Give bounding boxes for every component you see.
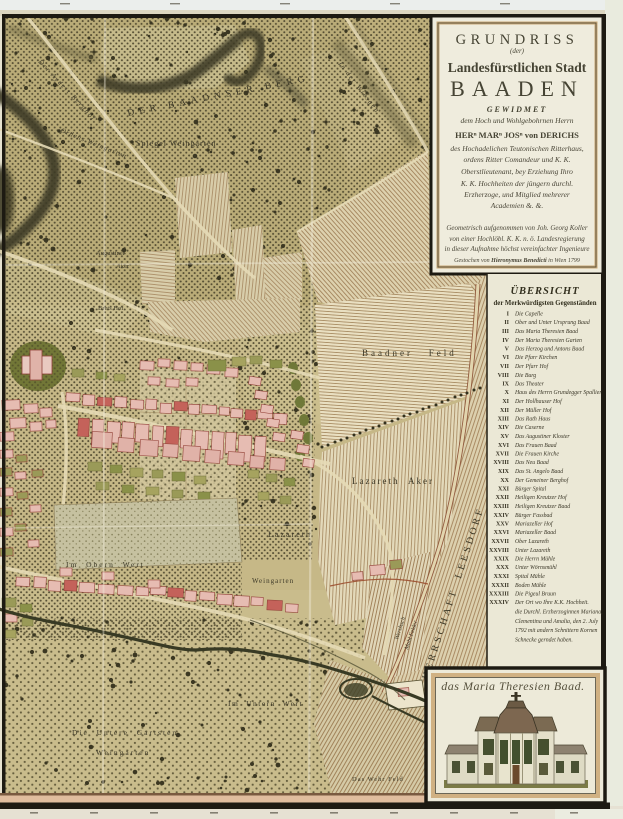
svg-text:IX: IX: [502, 382, 509, 388]
svg-text:Die Capelle: Die Capelle: [514, 312, 543, 318]
svg-text:die Durchl. Erzherzoginnen Mar: die Durchl. Erzherzoginnen Mariana,: [515, 610, 603, 616]
svg-text:Der Gemeiner Berghof: Der Gemeiner Berghof: [514, 477, 570, 484]
svg-text:XXV: XXV: [496, 522, 510, 528]
svg-text:der Merkwürdigsten Gegenstände: der Merkwürdigsten Gegenständen: [494, 300, 597, 307]
svg-text:Heiligen Kreutzer Hof: Heiligen Kreutzer Hof: [514, 494, 568, 501]
svg-text:Weingarten: Weingarten: [96, 748, 150, 757]
svg-text:Der Hollhauser Hof: Der Hollhauser Hof: [514, 398, 563, 405]
svg-text:Im Obern Wert: Im Obern Wert: [66, 560, 145, 569]
svg-text:Unter Wörnsmühl: Unter Wörnsmühl: [515, 565, 557, 571]
svg-text:Die Pigeul Bruun: Die Pigeul Bruun: [514, 592, 556, 598]
svg-text:Das St. Angelo Baad: Das St. Angelo Baad: [514, 469, 563, 475]
svg-text:GRUNDRISS: GRUNDRISS: [456, 32, 579, 48]
svg-text:Das Herzog und Antons Baad: Das Herzog und Antons Baad: [514, 347, 584, 353]
svg-text:Ober Lazareth: Ober Lazareth: [515, 539, 549, 545]
svg-text:XII: XII: [500, 408, 510, 414]
svg-text:Brets Hof: Brets Hof: [98, 305, 124, 312]
svg-text:XXVIII: XXVIII: [489, 548, 510, 554]
svg-text:Lazareth Aker: Lazareth Aker: [352, 476, 434, 486]
svg-text:ÜBERSICHT: ÜBERSICHT: [510, 284, 579, 297]
svg-text:Clementina und Amalia, den 2.: Clementina und Amalia, den 2. July: [515, 619, 599, 625]
svg-text:XXI: XXI: [498, 487, 510, 493]
svg-text:Die Frauen Kirche: Die Frauen Kirche: [514, 452, 559, 458]
svg-text:XVIII: XVIII: [493, 460, 509, 466]
svg-text:Heiligen Kreutzer Baad: Heiligen Kreutzer Baad: [514, 504, 570, 510]
svg-text:Bürger Spital: Bürger Spital: [515, 487, 547, 493]
svg-text:Baadner Feld: Baadner Feld: [362, 348, 457, 358]
svg-text:von einer Hochlöbl. K. K. n. ö: von einer Hochlöbl. K. K. n. ö. Landesre…: [449, 235, 585, 243]
svg-text:IV: IV: [502, 338, 509, 344]
svg-text:Die Herrn Mühle: Die Herrn Mühle: [514, 557, 556, 563]
svg-text:XXII: XXII: [496, 495, 510, 501]
svg-text:Spital Mühle: Spital Mühle: [515, 574, 545, 580]
svg-text:Lazareth: Lazareth: [268, 530, 312, 539]
svg-text:Augustiner: Augustiner: [96, 250, 126, 257]
svg-text:BAADEN: BAADEN: [450, 76, 584, 101]
svg-text:das Maria Theresien Baad.: das Maria Theresien Baad.: [441, 679, 584, 693]
svg-text:VIII: VIII: [498, 373, 510, 379]
svg-text:XX: XX: [500, 478, 509, 484]
svg-text:Haus des Herrn Grundegger Spal: Haus des Herrn Grundegger Spallier: [514, 390, 602, 396]
svg-text:HERⁿ MARⁿ JOSⁿ von DERICHS: HERⁿ MARⁿ JOSⁿ von DERICHS: [455, 130, 579, 140]
svg-text:Mariazeller Baad: Mariazeller Baad: [514, 530, 556, 536]
svg-text:VII: VII: [500, 364, 510, 370]
svg-text:Der Maria Theresien Garten: Der Maria Theresien Garten: [514, 338, 582, 344]
svg-text:XXXI: XXXI: [494, 574, 510, 580]
svg-text:Gestochen von Hieronymus Bened: Gestochen von Hieronymus Benedicti in Wi…: [454, 258, 580, 264]
svg-text:ordens Ritter Comandeur und K.: ordens Ritter Comandeur und K. K.: [463, 155, 570, 164]
svg-text:V: V: [505, 347, 510, 353]
svg-text:Das Frauen Baad: Das Frauen Baad: [514, 443, 557, 449]
svg-text:XV: XV: [500, 434, 509, 440]
svg-text:Mariazeller Hof: Mariazeller Hof: [514, 521, 554, 528]
svg-text:II: II: [504, 320, 509, 326]
svg-text:Im Untern Wert: Im Untern Wert: [228, 699, 303, 708]
svg-text:(der): (der): [510, 47, 525, 55]
svg-text:XIII: XIII: [498, 417, 510, 423]
svg-text:Schnecke gerndet haben.: Schnecke gerndet haben.: [515, 637, 573, 643]
svg-text:XXVII: XXVII: [491, 539, 509, 545]
svg-text:GEWIDMET: GEWIDMET: [487, 105, 547, 114]
svg-text:des Hochadelichen Teutonischen: des Hochadelichen Teutonischen Ritterhau…: [450, 144, 583, 153]
svg-text:X: X: [505, 390, 510, 396]
svg-text:XXIV: XXIV: [494, 513, 510, 519]
svg-text:Die Burg: Die Burg: [514, 373, 536, 379]
svg-text:Geometrisch aufgenommen von Jo: Geometrisch aufgenommen von Joh. Georg K…: [446, 224, 588, 232]
svg-text:Das Theater: Das Theater: [514, 382, 545, 388]
svg-text:Spiegel Weingarten: Spiegel Weingarten: [136, 139, 217, 148]
svg-text:Ober und Unter Ursprung Baad: Ober und Unter Ursprung Baad: [515, 320, 590, 326]
svg-text:Erzherzoge, und Mitglied mehre: Erzherzoge, und Mitglied mehrerer: [463, 190, 570, 199]
svg-text:Das Augustiner Kloster: Das Augustiner Kloster: [514, 434, 570, 440]
svg-text:Der Ort wo Ihre K.K. Hochheit.: Der Ort wo Ihre K.K. Hochheit.: [514, 600, 589, 606]
svg-text:Das Neu Baad: Das Neu Baad: [514, 460, 549, 466]
svg-text:XXXII: XXXII: [491, 583, 509, 589]
svg-text:Weingarten: Weingarten: [252, 577, 294, 585]
svg-text:XIX: XIX: [498, 469, 510, 475]
svg-text:XXIII: XXIII: [493, 504, 509, 510]
svg-text:dem Hoch und Wohlgebohrnen Her: dem Hoch und Wohlgebohrnen Herrn: [460, 116, 573, 125]
svg-text:Unter Lazareth: Unter Lazareth: [515, 548, 550, 554]
svg-text:in dieser Aufnahme höchst vere: in dieser Aufnahme höchst vereinfachter …: [445, 245, 590, 253]
svg-text:Boden Mühle: Boden Mühle: [515, 583, 546, 589]
svg-text:Der Müller Hof: Der Müller Hof: [514, 407, 553, 414]
svg-text:Die Pfarr Kirchen: Die Pfarr Kirchen: [514, 354, 557, 361]
svg-text:VI: VI: [502, 355, 509, 361]
svg-text:XVII: XVII: [496, 452, 510, 458]
svg-text:XXX: XXX: [496, 565, 510, 571]
svg-text:XXIX: XXIX: [494, 557, 510, 563]
svg-text:Academien &. &.: Academien &. &.: [490, 201, 544, 210]
svg-text:III: III: [502, 329, 510, 335]
svg-text:Die Caserne: Die Caserne: [514, 425, 545, 431]
svg-text:XI: XI: [502, 399, 509, 405]
svg-text:XIV: XIV: [498, 425, 510, 431]
svg-text:Landesfürstlichen Stadt: Landesfürstlichen Stadt: [448, 60, 587, 75]
svg-text:1792 mit andern Schnittern Kor: 1792 mit andern Schnittern Kornen: [515, 628, 598, 634]
svg-text:K. K. Hochheiten der jüngern d: K. K. Hochheiten der jüngern durchl.: [460, 179, 573, 188]
svg-text:Das Maria Theresien Baad: Das Maria Theresien Baad: [514, 329, 578, 335]
svg-text:XXVI: XXVI: [494, 530, 510, 536]
svg-text:Das Wehr Feld: Das Wehr Feld: [352, 776, 404, 783]
svg-text:Der Pfarr Hof: Der Pfarr Hof: [514, 363, 550, 370]
svg-text:Die Untere Gartsten: Die Untere Gartsten: [72, 728, 178, 737]
svg-text:XVI: XVI: [498, 443, 510, 449]
svg-text:XXXIV: XXXIV: [489, 600, 509, 606]
svg-text:Oberstlieutenant, bey Erziehun: Oberstlieutenant, bey Erziehung Ihro: [461, 167, 573, 176]
svg-text:XXXIII: XXXIII: [489, 592, 510, 598]
svg-text:Das Rath Haus: Das Rath Haus: [514, 417, 551, 423]
svg-text:Bürger Fassbad: Bürger Fassbad: [515, 513, 552, 519]
